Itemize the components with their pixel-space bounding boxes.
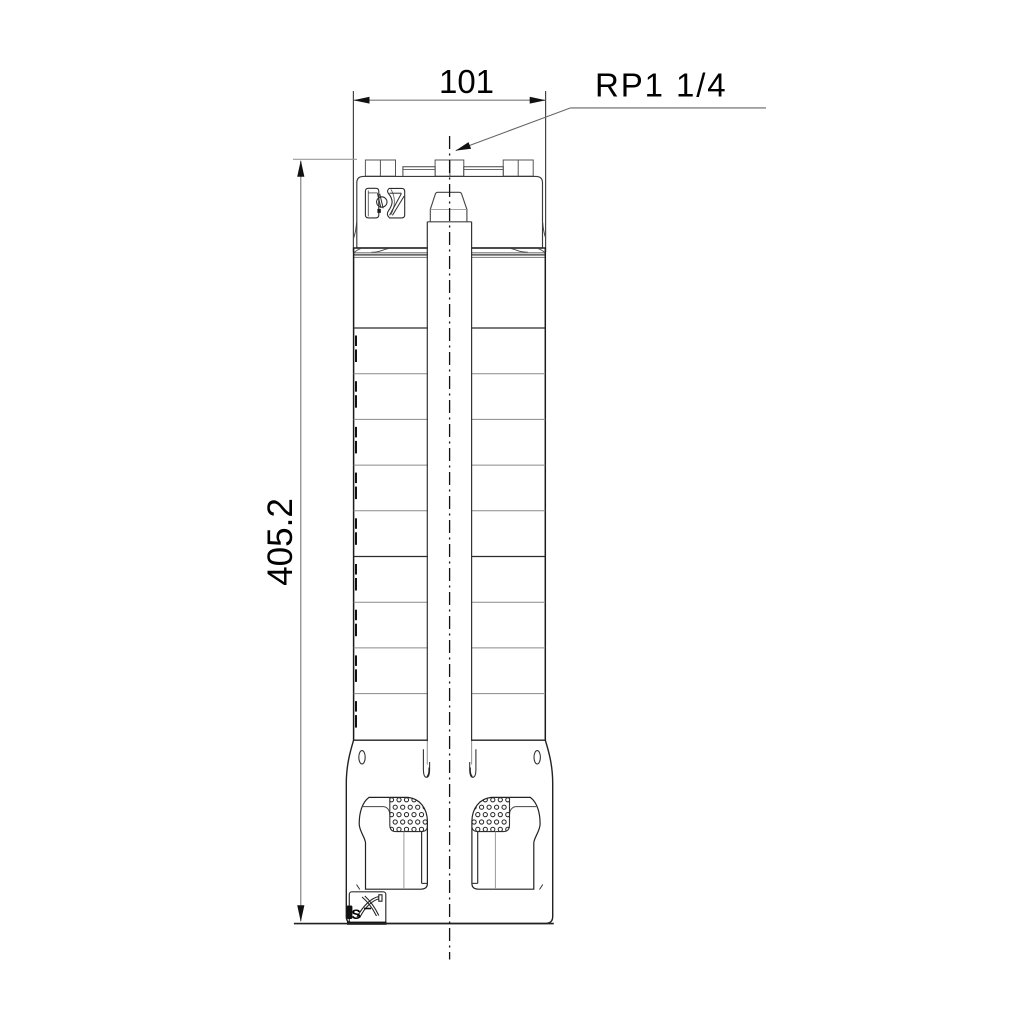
svg-text:101: 101 <box>439 63 494 100</box>
svg-text:S: S <box>352 906 361 922</box>
svg-text:405.2: 405.2 <box>261 498 300 586</box>
svg-text:RP1 1/4: RP1 1/4 <box>595 67 728 104</box>
